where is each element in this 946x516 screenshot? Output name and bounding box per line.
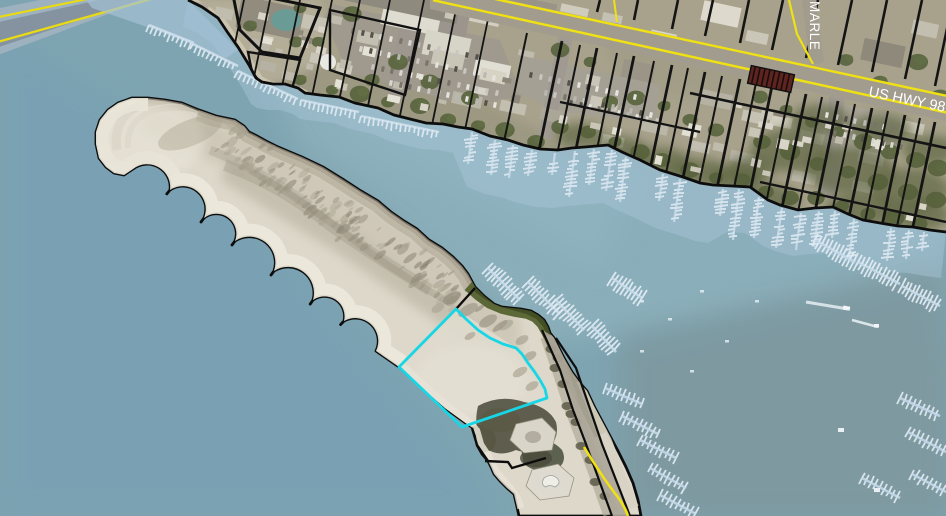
- svg-text:MARLE: MARLE: [807, 1, 822, 51]
